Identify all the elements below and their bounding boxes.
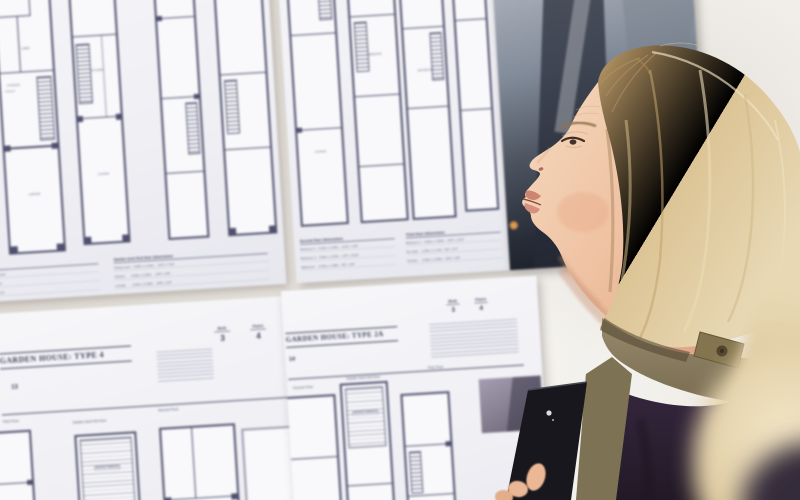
brochure-glint-small — [552, 419, 554, 421]
photograph: WC LOBBY STORAGE UTILITY GARAGE DINING R… — [0, 0, 800, 500]
hair — [598, 43, 800, 357]
epaulette-button-center — [720, 349, 724, 353]
brochure-and-hand — [494, 382, 587, 500]
eye — [570, 139, 577, 144]
cheek-blush — [557, 192, 609, 232]
brochure-glint — [546, 410, 551, 415]
woman-figure — [0, 0, 800, 500]
